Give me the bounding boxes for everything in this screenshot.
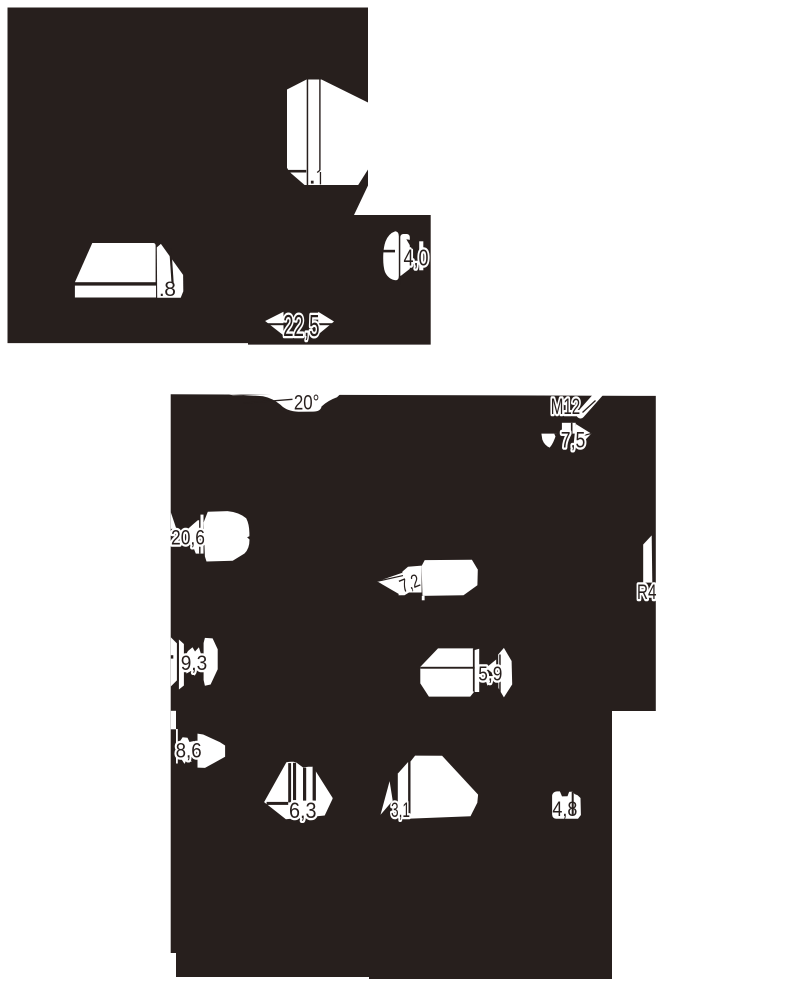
svg-text:5,9: 5,9 xyxy=(478,663,502,686)
svg-text:8,6: 8,6 xyxy=(176,739,202,763)
svg-text:3,1: 3,1 xyxy=(391,799,410,822)
svg-text:4,0: 4,0 xyxy=(404,245,429,271)
svg-text:M12: M12 xyxy=(551,394,581,419)
svg-text:20°: 20° xyxy=(294,392,320,415)
svg-text:9,3: 9,3 xyxy=(181,652,208,675)
svg-text:7,5: 7,5 xyxy=(561,428,586,453)
svg-text:.8: .8 xyxy=(159,278,176,301)
svg-text:6,3: 6,3 xyxy=(289,798,317,823)
svg-text:22,5: 22,5 xyxy=(283,308,320,343)
svg-text:20,6: 20,6 xyxy=(171,527,205,550)
svg-text:4,8: 4,8 xyxy=(552,798,577,821)
svg-text:R4: R4 xyxy=(637,581,657,604)
